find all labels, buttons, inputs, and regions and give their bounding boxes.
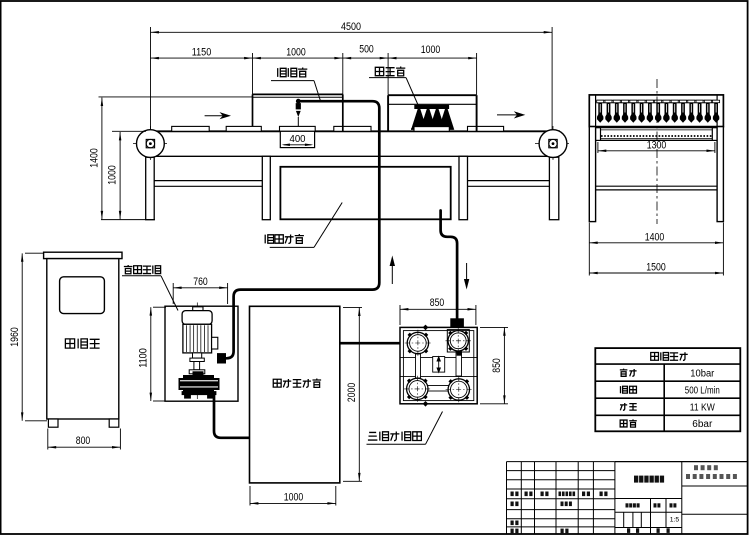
svg-text:500: 500 (359, 43, 374, 55)
svg-text:760: 760 (193, 276, 208, 288)
svg-text:1400: 1400 (89, 148, 101, 168)
svg-text:1000: 1000 (107, 165, 119, 185)
svg-text:800: 800 (76, 435, 91, 447)
svg-text:1:5: 1:5 (670, 516, 680, 523)
svg-text:500 L/min: 500 L/min (685, 385, 720, 396)
svg-text:6bar: 6bar (692, 419, 713, 430)
svg-text:1000: 1000 (284, 492, 304, 504)
svg-text:1960: 1960 (9, 327, 21, 347)
svg-text:10bar: 10bar (690, 368, 715, 379)
svg-text:1150: 1150 (192, 47, 212, 59)
svg-text:1000: 1000 (421, 44, 441, 56)
svg-text:2000: 2000 (346, 383, 358, 403)
svg-text:11 KW: 11 KW (690, 402, 715, 413)
svg-text:1100: 1100 (137, 348, 149, 368)
svg-text:1000: 1000 (286, 47, 306, 59)
svg-text:850: 850 (491, 358, 503, 373)
svg-text:850: 850 (430, 297, 445, 309)
svg-text:1400: 1400 (645, 231, 665, 243)
svg-text:1300: 1300 (647, 139, 667, 151)
svg-text:400: 400 (290, 134, 306, 145)
svg-text:4500: 4500 (341, 21, 361, 33)
svg-text:1500: 1500 (646, 262, 666, 274)
